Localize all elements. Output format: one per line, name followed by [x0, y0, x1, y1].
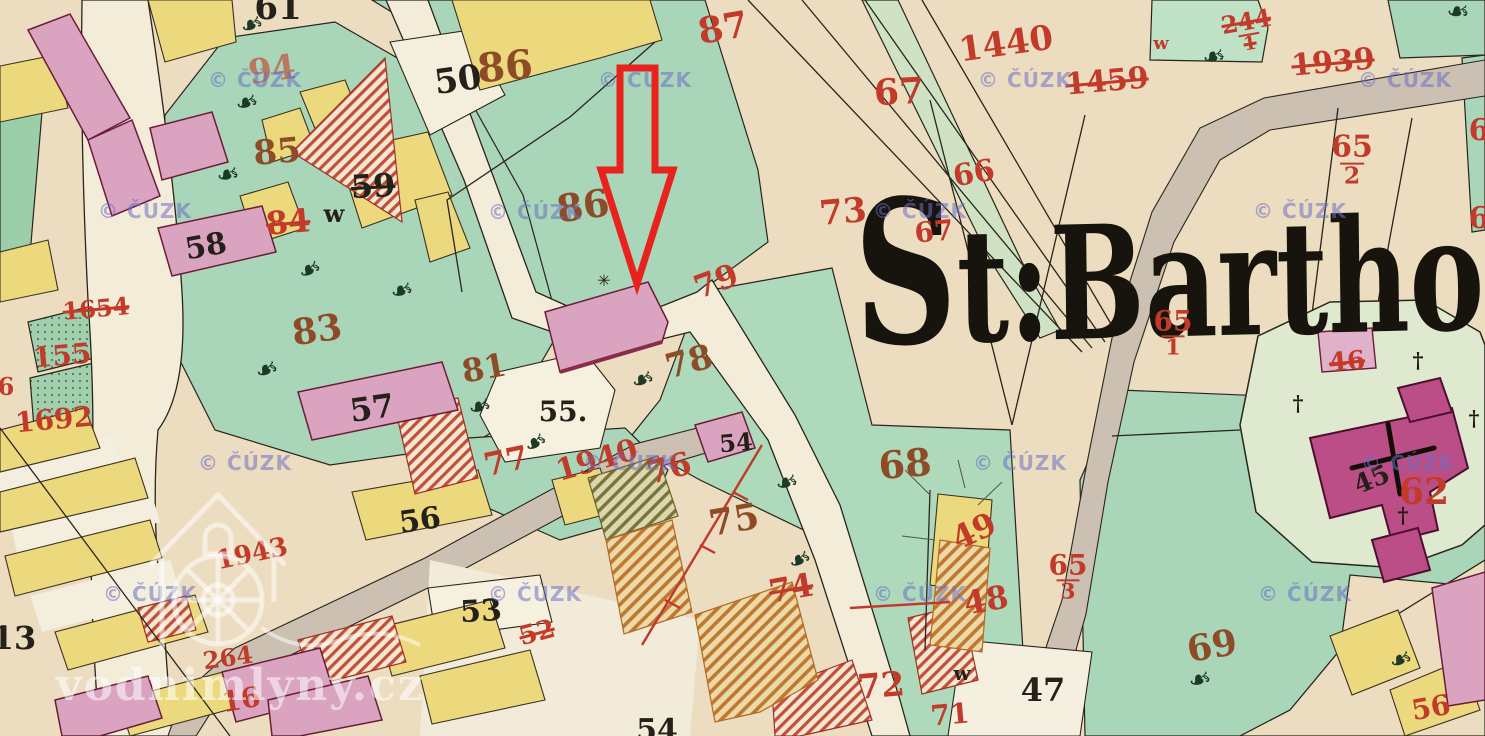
site-watermark: vodnimlyny.cz — [56, 660, 425, 711]
cuzk-watermark: © ČÚZK — [488, 200, 582, 224]
cuzk-watermark: © ČÚZK — [1358, 68, 1452, 92]
cuzk-watermark: © ČÚZK — [873, 199, 967, 223]
cuzk-watermark: © ČÚZK — [873, 582, 967, 606]
cuzk-watermark: © ČÚZK — [583, 451, 677, 475]
cuzk-watermark: © ČÚZK — [1258, 582, 1352, 606]
cuzk-watermark: © ČÚZK — [208, 68, 302, 92]
cuzk-watermark: © ČÚZK — [103, 582, 197, 606]
place-name-label: St:Bartho — [853, 161, 1485, 375]
cuzk-watermark: © ČÚZK — [488, 582, 582, 606]
cuzk-watermark: © ČÚZK — [98, 199, 192, 223]
cadastral-map[interactable]: St:Bartho 615094855984w5883815755.548686… — [0, 0, 1485, 736]
cuzk-watermark: © ČÚZK — [973, 451, 1067, 475]
cuzk-watermark: © ČÚZK — [198, 451, 292, 475]
cuzk-watermark: © ČÚZK — [598, 68, 692, 92]
cuzk-watermark: © ČÚZK — [978, 68, 1072, 92]
cuzk-watermark: © ČÚZK — [1253, 199, 1347, 223]
cuzk-watermark: © ČÚZK — [1361, 451, 1455, 475]
